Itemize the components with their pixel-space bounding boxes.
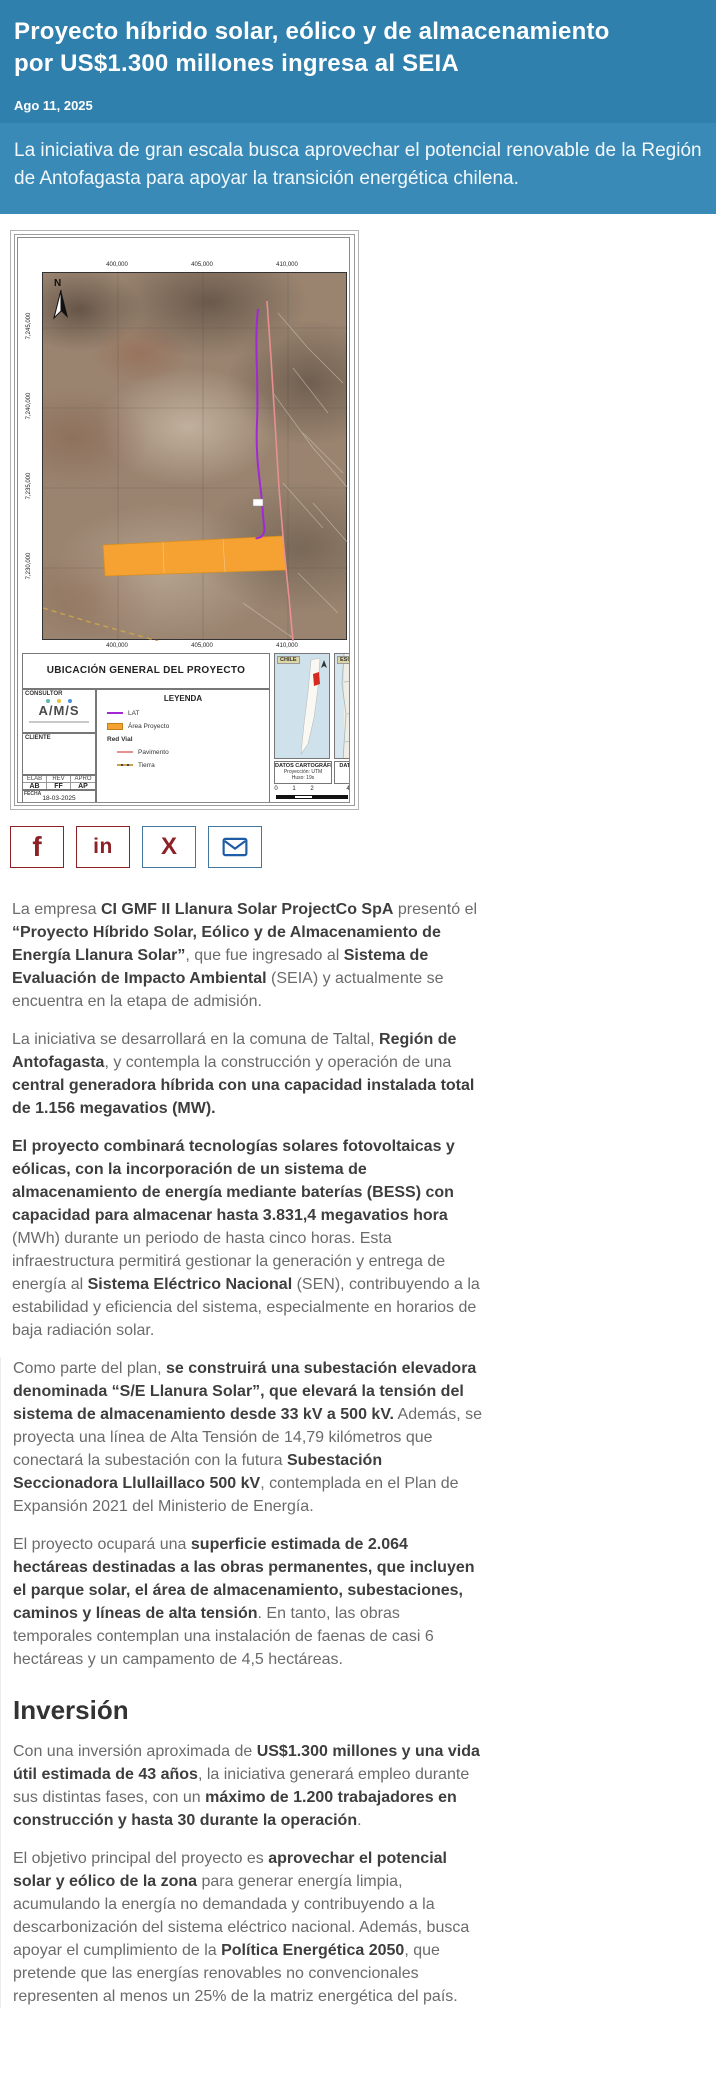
legend-item: Tierra (117, 759, 269, 772)
project-location-map: N 400,000405,000410,000415,000400,000405… (10, 230, 359, 810)
consultor-box: CONSULTOR A/M/S (22, 689, 96, 733)
map-coordinate-label: 400,000 (106, 262, 128, 268)
inset-chile-label: CHILE (277, 656, 300, 664)
scale-tick: 0 (274, 786, 277, 792)
cliente-label: CLIENTE (23, 734, 95, 742)
article-paragraph: El objetivo principal del proyecto es ap… (1, 1847, 482, 2008)
article-paragraph: Con una inversión aproximada de US$1.300… (1, 1740, 482, 1832)
satellite-area (42, 272, 347, 640)
x-icon: X (161, 833, 177, 861)
article-page: Proyecto híbrido solar, eólico y de alma… (0, 0, 716, 2075)
approvals-header: ELAB (23, 776, 47, 783)
inset-map-esquema: ESQUEMA PROVINCIAL (334, 653, 350, 759)
fecha-box: FECHA 18-03-2025 (22, 790, 96, 803)
legend-swatch-line-dashed (117, 761, 133, 769)
approvals-table: ELAB REV APRO AB FF AP (22, 775, 96, 790)
article-header: Proyecto híbrido solar, eólico y de alma… (0, 0, 716, 214)
legend-items: LATÁrea ProyectoRed VialPavimentoTierra (97, 707, 269, 772)
inset-esquema-label: ESQUEMA PROVINCIAL (337, 656, 350, 664)
email-share-button[interactable] (208, 826, 262, 868)
consultor-label: CONSULTOR (23, 690, 95, 698)
map-coordinate-label: 410,000 (276, 262, 298, 268)
legend-swatch-line-pink (117, 748, 133, 756)
legend-item: Pavimento (117, 746, 269, 759)
map-coordinate-label: 7,245,000 (26, 306, 32, 346)
article-date: Ago 11, 2025 (14, 98, 702, 113)
esquema-inset-graphic (335, 654, 350, 759)
legend-swatch-line-purple (107, 709, 123, 717)
datos-geodesicos-box: DATOS GEODÉSICOS (334, 761, 350, 784)
approvals-value: AB (23, 783, 47, 789)
article-paragraph: La iniciativa se desarrollará en la comu… (0, 1028, 482, 1120)
scale-tick: 2 (310, 786, 313, 792)
facebook-share-button[interactable]: f (10, 826, 64, 868)
x-share-button[interactable]: X (142, 826, 196, 868)
project-area-polygon (103, 536, 286, 576)
map-title: UBICACIÓN GENERAL DEL PROYECTO (22, 653, 270, 689)
map-coordinate-label: 7,240,000 (26, 386, 32, 426)
fecha-label: FECHA (24, 791, 41, 797)
map-coordinate-label: 7,235,000 (26, 466, 32, 506)
map-coordinate-label: 405,000 (191, 643, 213, 649)
dirt-road-line (43, 608, 158, 641)
article-paragraph: La empresa CI GMF II Llanura Solar Proje… (0, 898, 482, 1013)
article-intro-section: La empresa CI GMF II Llanura Solar Proje… (0, 898, 482, 1342)
consultant-logo: A/M/S (23, 703, 95, 718)
hero-top: Proyecto híbrido solar, eólico y de alma… (0, 0, 716, 123)
approvals-value: AP (71, 783, 95, 789)
map-frame: N 400,000405,000410,000415,000400,000405… (14, 234, 355, 806)
north-arrow-icon (48, 288, 74, 322)
approvals-value: FF (47, 783, 71, 789)
cliente-box: CLIENTE (22, 733, 96, 775)
linkedin-share-button[interactable]: in (76, 826, 130, 868)
paved-road-line (267, 301, 293, 641)
datos-line: Huso: 19s (275, 775, 331, 781)
article-paragraph: El proyecto ocupará una superficie estim… (1, 1533, 482, 1671)
scale-tick: 1 (292, 786, 295, 792)
legend-swatch-fill-orange (107, 723, 123, 730)
article-paragraph: El proyecto combinará tecnologías solare… (0, 1135, 482, 1342)
page-title: Proyecto híbrido solar, eólico y de alma… (14, 16, 654, 80)
map-scale-bar: 0124 (274, 786, 350, 802)
datos-cartograficos-box: DATOS CARTOGRÁFICOS Proyección: UTM Huso… (274, 761, 332, 784)
map-coordinate-label: 400,000 (106, 643, 128, 649)
envelope-icon (222, 837, 248, 857)
chile-inset-graphic (275, 654, 330, 759)
share-buttons: f in X (10, 826, 716, 868)
article-paragraph: Como parte del plan, se construirá una s… (1, 1357, 482, 1518)
approvals-header: APRO (71, 776, 95, 783)
datos-geodesicos-title: DATOS GEODÉSICOS (335, 763, 350, 769)
legend-title: LEYENDA (97, 694, 269, 703)
section-heading: Inversión (1, 1695, 482, 1726)
datos-cartograficos-title: DATOS CARTOGRÁFICOS (275, 763, 331, 769)
scale-bar-graphic (276, 795, 348, 799)
approvals-header: REV (47, 776, 71, 783)
map-coordinate-label: 405,000 (191, 262, 213, 268)
scale-tick: 4 (346, 786, 349, 792)
map-sheet: N 400,000405,000410,000415,000400,000405… (17, 237, 350, 803)
legend-item: LAT (107, 707, 269, 720)
map-overlay-graphics (43, 273, 348, 641)
consultant-logo-subtext (29, 721, 89, 723)
legend-item: Área Proyecto (107, 720, 269, 733)
map-coordinate-label: 410,000 (276, 643, 298, 649)
legend: LEYENDA LATÁrea ProyectoRed VialPaviment… (96, 689, 270, 803)
road-marker (253, 499, 263, 506)
legend-item: Red Vial (107, 733, 269, 746)
facebook-icon: f (32, 831, 41, 863)
inset-map-chile: CHILE (274, 653, 330, 759)
linkedin-icon: in (93, 835, 113, 859)
article-main-section: Como parte del plan, se construirá una s… (0, 1357, 482, 2008)
article-body: La empresa CI GMF II Llanura Solar Proje… (0, 898, 482, 2008)
article-subtitle: La iniciativa de gran escala busca aprov… (0, 123, 716, 214)
map-coordinate-label: 7,230,000 (26, 546, 32, 586)
